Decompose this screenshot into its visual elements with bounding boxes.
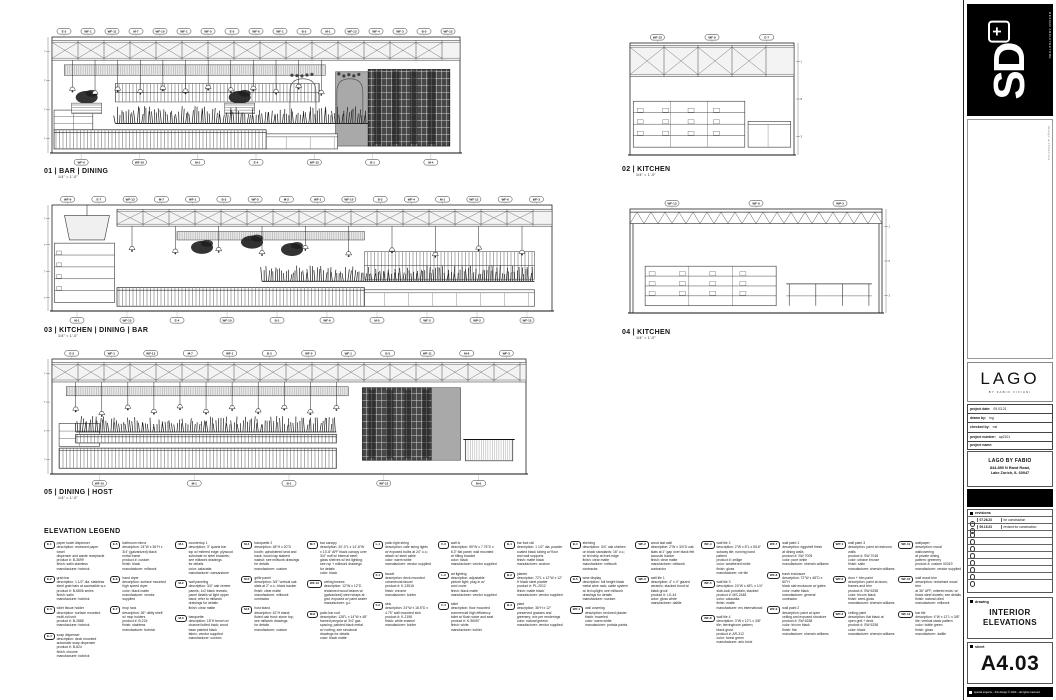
elevation-02-title: 02 | KITCHEN 1/4" = 1'-0" [622,166,670,177]
revision-row [968,544,1052,551]
finish-tag: WF-3 [423,319,431,323]
client-logo-subtext: BY FABIO VIVIANI [968,390,1052,394]
legend-tag: M-5 [241,576,252,584]
stamp-box [967,489,1053,507]
finish-tag: E-7 [97,198,102,202]
svg-text:8'-0": 8'-0" [44,243,46,247]
square-bullet-icon [970,645,973,648]
finish-tag: B-5 [422,30,427,34]
legend-text: wall paint 1description: eggshell finish… [782,541,828,567]
finish-tag: WF-1 [108,352,116,356]
firm-info-box: design architecture [967,119,1053,359]
finish-tag: M-1 [325,30,330,34]
sheet-label-row: sheet [968,643,1052,650]
svg-text:2'-6": 2'-6" [44,296,46,300]
sheet-number: A4.03 [968,652,1052,676]
legend-text: patio light stringdescription: cafe stri… [385,541,431,567]
elevation-05-dining-host: 13'-6"9'-0"3'-0"2'-6"E-2WF-1WF-13M-7WF-1… [44,349,534,488]
legend-text: shelvingdescription: 3/4" oak shelveson … [583,541,626,571]
legend-text: grab bardescription: 1 1/2" dia. stainle… [57,576,107,602]
legend-column: B-1bar foot raildescription: 1 1/2" dia.… [504,541,567,697]
sd-logo: SD + [988,20,1032,99]
legend-tag: E-6 [110,576,121,584]
finish-tag: WF-10 [135,161,144,165]
svg-text:2'-6": 2'-6" [44,458,46,462]
legend-tag: B-3 [504,602,515,610]
legend-tag: E-3 [44,606,55,614]
legend-entry: E-1paper towel dispenserdescription: rec… [44,541,107,571]
legend-text: bar canopydescription: 20'-0"L x 14'-6"W… [320,541,367,575]
legend-entry: E-7mop rackdescription: 36" utility shel… [110,606,173,632]
project-info-row: project date:09.03.21 [967,404,1053,413]
revision-row [968,537,1052,544]
legend-entry: E-5bathroom mirrordescription: 24"W x 36… [110,541,173,571]
legend-entry: B-1bar foot raildescription: 1 1/2" dia.… [504,541,567,567]
finish-tag: M-7 [159,198,164,202]
sheet-label: sheet [975,645,984,649]
finish-tag: WF-10 [223,319,232,323]
finish-tag: WF-1 [180,30,188,34]
finish-tag: WF-12 [469,198,478,202]
legend-entry: WF-4wall tile 2description: 2"W x 8"L x … [701,541,764,575]
legend-text: ceiling paintdescription: flat black ato… [848,611,894,637]
project-info-row: project name: [967,441,1053,450]
legend-text: wall tile 4description: 3"W x 12"L x 3/8… [717,615,761,645]
legend-column: L-1patio light stringdescription: cafe s… [373,541,436,697]
elevation-03-scale: 1/4" = 1'-0" [58,334,148,338]
legend-column: WP-1wall paint 3description: paint at re… [833,541,896,697]
legend-text: trash enclosuredescription: 72"W x 48"D … [782,572,829,602]
info-value: md [993,425,998,429]
legend-tag: WP-1 [833,541,847,549]
finish-tag: WF-4 [372,30,380,34]
legend-entry: WF-7wall paint 1description: eggshell fi… [767,541,830,567]
finish-tag: WF-9 [708,36,716,40]
finish-tag: WF-3 [533,198,541,202]
legend-text: banquettedescription: 18"H bench w/chann… [189,615,229,641]
elevation-02-scale: 1/4" = 1'-0" [636,173,670,177]
legend-entry: E-2grab bardescription: 1 1/2" dia. stai… [44,576,107,602]
legend-tag: WF-9 [767,606,780,614]
legend-column: F-3wall tvdescription: 55"W x 7.75"D x6.… [438,541,501,697]
legend-tag: M-6 [241,606,252,614]
finish-tag: WF-11 [423,352,432,356]
legend-tag: M-4 [241,541,252,549]
legend-tag: WF-4 [701,541,714,549]
legend-entry: WF-11wallpaperdescription: mural wallcov… [898,541,961,571]
project-info-row: checked by:md [967,422,1053,431]
drawing-title-box: drawing INTERIOR ELEVATIONS [967,597,1053,639]
finish-tag: M-2 [284,198,289,202]
revision-row [968,530,1052,537]
finish-tag: WF-4 [408,198,416,202]
finish-tag: WF-10 [95,482,104,486]
legend-entry: WP-2door + trim paintdescription: paint … [833,576,896,606]
finish-tag: WF-3 [503,352,511,356]
legend-entry: E-4soap dispenserdescription: deck mount… [44,633,107,659]
revision-note: revised for construction [1001,525,1052,529]
legend-entry: WF-5wall tile 3description: 24"W x 48"L … [701,580,764,610]
project-address-box: LAGO BY FABIO 844-850 N Rand Road, Lake … [967,451,1053,487]
revision-row [968,558,1052,565]
elevation-05-label: 05 | DINING | HOST [44,489,113,496]
legend-entry: WF-3wall tile 1description: 4" x 4" glaz… [635,576,698,606]
elevation-01-title: 01 | BAR | DINING 1/4" = 1'-0" [44,168,108,179]
finish-tag: WF-10 [344,198,353,202]
legend-title: ELEVATION LEGEND [44,528,121,535]
legend-entry: F-1faucetdescription: deck mountedcommer… [373,572,436,598]
finish-tag: WF-5 [305,352,313,356]
elevation-drawing-svg: 13'-6"9'-0"3'-0"2'-6"E-2WF-1WF-13M-7WF-1… [44,349,534,488]
svg-text:9'-0": 9'-0" [44,400,46,404]
legend-column: E-5bathroom mirrordescription: 24"W x 36… [110,541,173,697]
finish-tag: WF-6 [323,319,331,323]
legend-text: planterdescription: 72"L x 12"W x 12"H b… [517,572,563,598]
legend-tag: WF-8 [767,572,780,580]
project-address-line1: 844-850 N Rand Road, [968,466,1052,470]
revision-note: for construction [1001,518,1052,522]
info-label: project date: [970,407,990,411]
sd-logo-plus-icon: + [988,20,1010,42]
svg-text:13'-6": 13'-6" [44,371,46,375]
elevation-drawing-svg: 12'-8"8'-4"3'-0"WF-13WF-9E-7 [622,33,802,161]
finish-tag: E-2 [62,30,67,34]
legend-text: patio bar roofdescription: 128"L x 14"W … [320,611,367,641]
svg-text:12'-8": 12'-8" [801,60,803,64]
legend-text: wall tvdescription: 55"W x 7.75"D x6.3" … [451,541,497,567]
legend-tag: WF-10 [898,576,913,584]
finish-tag: WF-1 [226,352,234,356]
legend-column: WF-11wallpaperdescription: mural wallcov… [898,541,961,697]
legend-text: hand dryerdescription: surface mountedhi… [122,576,166,602]
legend-tag: M-7 [307,541,318,549]
finish-tag: WF-1 [189,198,197,202]
finish-tag: WF-1 [345,352,353,356]
client-logo-box: LAGO BY FABIO VIVIANI [967,362,1053,402]
elevation-02-label: 02 | KITCHEN [622,166,670,173]
legend-text: mop rackdescription: 36" utility shelfw/… [122,606,162,632]
legend-tag: B-1 [504,541,515,549]
finish-tag: WF-13 [126,198,135,202]
legend-text: wood slat walldescription: 2"W x 3/4"D o… [651,541,694,571]
legend-tag: F-4 [438,602,449,610]
legend-tag: WF-7 [767,541,780,549]
svg-text:13'-6": 13'-6" [44,50,46,54]
info-label: project number: [970,435,996,439]
legend-text: wall tile 1description: 4" x 4" glazedce… [651,576,690,606]
legend-entry: M-8patio bar roofdescription: 128"L x 14… [307,611,370,641]
legend-tag: E-5 [110,541,121,549]
legend-text: toiletdescription: floor mountedcommerci… [451,602,493,632]
legend-text: wall coveringdescription: textured plast… [585,606,627,627]
project-info-row: project number:ap2101 [967,432,1053,441]
finish-tag: M-1 [192,482,197,486]
finish-tag: WF-12 [310,161,319,165]
info-label: checked by: [970,425,990,429]
finish-tag: E-2 [69,352,74,356]
legend-column: WF-2wood slat walldescription: 2"W x 3/4… [635,541,698,697]
info-label: drawn by: [970,416,986,420]
legend-tag: F-2 [373,602,384,610]
elevation-04-label: 04 | KITCHEN [622,329,670,336]
elevation-01-bar-dining: 13'-6"9'-0"3'-6"2'-10"E-2WF-1WF-11M-7WF-… [44,27,468,167]
finish-tag: WF-10 [156,30,165,34]
revision-number [968,574,977,592]
legend-text: wall tile 3description: 24"W x 48"L x 1/… [717,580,763,610]
finish-tag: B-2 [378,198,383,202]
finish-tag: WF-9 [752,202,760,206]
finish-tag: WP-2 [473,319,481,323]
drawing-label-row: drawing [968,598,1052,605]
finish-tag: WF-6 [501,198,509,202]
legend-tag: WF-6 [701,615,714,623]
legend-column: B-4shelvingdescription: 3/4" oak shelves… [570,541,633,697]
legend-entry: WF-8trash enclosuredescription: 72"W x 4… [767,572,830,602]
client-logo-text: LAGO [968,369,1052,389]
legend-entry: M-6host standdescription: 42"H stand;flu… [241,606,304,632]
finish-tag: B-2 [302,30,307,34]
legend-tag: M-3 [175,615,186,623]
legend-tag: WP-2 [833,576,847,584]
finish-tag: M-5 [374,319,379,323]
finish-tag: M-1 [195,161,200,165]
legend-text: wall paint 2description: paint at opence… [782,606,828,636]
legend-column: WF-4wall tile 2description: 2"W x 8"L x … [701,541,764,697]
finish-tag: WP-3 [836,202,844,206]
finish-tag: WF-9 [64,198,72,202]
legend-entry: WF-12bar tiledescription: 4"W x 12"L x 3… [898,611,961,637]
svg-text:9'-0": 9'-0" [44,79,46,83]
legend-text: wall paint 3description: paint at restro… [848,541,894,571]
elevation-drawing-svg: 13'-6"8'-0"3'-6"2'-6"WF-9E-7WF-13M-7WF-1… [44,195,560,325]
info-value: 09.03.21 [993,407,1006,411]
elevation-01-label: 01 | BAR | DINING [44,168,108,175]
project-name: LAGO BY FABIO [968,458,1052,464]
legend-entry: F-4toiletdescription: floor mountedcomme… [438,602,501,632]
copyright-strip: special projects – this design © 2023 – … [967,687,1053,697]
finish-tag: B-3 [267,352,272,356]
finish-tag: WF-6 [252,30,260,34]
legend-tag: WF-5 [701,580,714,588]
legend-entry: WF-13ceiling beamsdescription: 12"W x 12… [307,580,370,606]
legend-entry: WF-6wall tile 4description: 3"W x 12"L x… [701,615,764,645]
legend-entry: M-1countertop 1description: 3" quartz ba… [175,541,238,575]
drawing-label: drawing [975,600,989,604]
sd-logo-text: SD [988,44,1032,99]
legend-tag: M-8 [307,611,318,619]
project-info-row: drawn by:mg [967,413,1053,422]
revisions-label: revisions [975,511,991,515]
svg-text:3'-0": 3'-0" [801,134,803,138]
finish-tag: B-1 [275,319,280,323]
legend-text: toilet tissue holderdescription: surface… [57,606,101,627]
legend-text: wall tile 2description: 2"W x 8"L x 5/16… [717,541,761,575]
finish-tag: B-5 [385,352,390,356]
legend-text: grille paneldescription: 3/4" vertical o… [254,576,296,602]
drawing-title-line2: ELEVATIONS [968,618,1052,628]
finish-tag: WF-12 [123,319,132,323]
elevation-02-kitchen: 12'-8"8'-4"3'-0"WF-13WF-9E-7 [622,33,802,161]
legend-entry: M-5grille paneldescription: 3/4" vertica… [241,576,304,602]
legend-entry: F-3wall tvdescription: 55"W x 7.75"D x6.… [438,541,501,567]
legend-entry: L-1patio light stringdescription: cafe s… [373,541,436,567]
square-bullet-icon [969,691,972,694]
firm-side-note: design architecture [1047,126,1051,161]
elevation-04-scale: 1/4" = 1'-0" [636,336,670,340]
legend-tag: M-1 [175,541,186,549]
legend-entry: F-2sinkdescription: 24"W x 18.5"D x4.75"… [373,602,436,628]
legend-tag: WF-2 [635,541,648,549]
legend-text: wallpaperdescription: mural wallcovering… [915,541,961,571]
finish-tag: E-4 [175,319,180,323]
legend-tag: E-1 [44,541,55,549]
drawing-title-line1: INTERIOR [968,608,1052,618]
finish-tag: WF-1 [314,198,322,202]
legend-entry: B-3plantdescription: 36"H x 12"preserved… [504,602,567,628]
finish-tag: M-1 [440,198,445,202]
legend-text: ceiling beamsdescription: 12"W x 12"Drec… [324,580,367,606]
legend-text: soap dispenserdescription: deck mounteda… [57,633,97,659]
svg-text:2'-10": 2'-10" [44,137,46,141]
legend-entry: WP-1wall paint 3description: paint at re… [833,541,896,571]
legend-tag: B-2 [504,572,515,580]
finish-tag: B-1 [287,482,292,486]
legend-text: bar foot raildescription: 1 1/2" dia. po… [517,541,563,567]
elevation-01-scale: 1/4" = 1'-0" [58,175,108,179]
legend-text: sinkdescription: 24"W x 18.5"D x4.75" wa… [385,602,428,628]
legend-text: paper towel dispenserdescription: recess… [57,541,107,571]
revision-row [968,572,1052,579]
legend-tag: L-2 [438,572,449,580]
finish-tag: M-4 [428,161,433,165]
legend-tag: WP-3 [833,611,847,619]
sheet-number-box: sheet A4.03 [967,642,1053,684]
finish-tag: WF-12 [523,319,532,323]
legend-entry: WF-9wall paint 2description: paint at op… [767,606,830,636]
elevation-05-scale: 1/4" = 1'-0" [58,496,113,500]
revisions-box: revisions 107.26.23for construction209.1… [967,509,1053,593]
revision-date: 09.15.23 [977,525,1001,529]
elevation-legend: E-1paper towel dispenserdescription: rec… [44,541,961,697]
finish-tag: E-7 [764,36,769,40]
project-info-rows: project date:09.03.21drawn by:mgchecked … [967,404,1053,450]
legend-entry: L-2art lightingdescription: adjustablepi… [438,572,501,598]
legend-tag: E-2 [44,576,55,584]
svg-text:6'-8": 6'-8" [889,259,891,263]
legend-tag: F-1 [373,572,384,580]
finish-tag: B-3 [221,198,226,202]
legend-column: WF-7wall paint 1description: eggshell fi… [767,541,830,697]
svg-text:3'-6": 3'-6" [44,108,46,112]
legend-tag: B-5 [570,576,581,584]
elevation-04-title: 04 | KITCHEN 1/4" = 1'-0" [622,329,670,340]
project-address-line2: Lake Zurich, IL 60047 [968,471,1052,475]
legend-tag: WF-1 [570,606,583,614]
legend-text: banquette 2description: 48"H x 20"Dbooth… [254,541,299,571]
copyright-text: special projects – this design © 2023 – … [974,691,1040,694]
revision-row: 209.15.23revised for construction [968,523,1052,530]
legend-entry: M-7bar canopydescription: 20'-0"L x 14'-… [307,541,370,575]
finish-tag: B-1 [370,161,375,165]
legend-entry: E-3toilet tissue holderdescription: surf… [44,606,107,627]
legend-text: wall panelingdescription: 3/4" oak venee… [189,580,231,610]
finish-tag: WF-13 [668,202,677,206]
legend-entry: M-2wall panelingdescription: 3/4" oak ve… [175,580,238,610]
revision-row: 107.26.23for construction [968,516,1052,523]
legend-column: M-1countertop 1description: 3" quartz ba… [175,541,238,697]
elevation-drawing-svg: 13'-6"9'-0"3'-6"2'-10"E-2WF-1WF-11M-7WF-… [44,27,468,167]
svg-text:3'-6": 3'-6" [44,269,46,273]
legend-tag: E-7 [110,606,121,614]
finish-tag: M-7 [133,30,138,34]
legend-tag: L-1 [373,541,384,549]
finish-tag: WF-1 [84,30,92,34]
elevation-05-title: 05 | DINING | HOST 1/4" = 1'-0" [44,489,113,500]
svg-text:14'-0": 14'-0" [889,224,891,228]
legend-tag: WF-3 [635,576,648,584]
svg-text:3'-0": 3'-0" [889,294,891,298]
finish-tag: WF-5 [251,198,259,202]
legend-tag: WF-11 [898,541,913,549]
elevation-drawing-svg: 14'-0"6'-8"3'-0"WF-13WF-9WP-3 [622,199,890,319]
svg-text:13'-6": 13'-6" [44,216,46,220]
info-value: mg [989,416,994,420]
legend-text: art lightingdescription: adjustablepictu… [451,572,497,598]
revisions-rows: 107.26.23for construction209.15.23revise… [968,516,1052,586]
legend-column: E-1paper towel dispenserdescription: rec… [44,541,107,697]
info-value: ap2101 [999,435,1010,439]
finish-tag: M-6 [476,482,481,486]
title-block: SD + DESIGN ARCHITECTURE design architec… [963,0,1056,700]
finish-tag: WF-3 [396,30,404,34]
finish-tag: M-7 [188,352,193,356]
finish-tag: M-6 [464,352,469,356]
info-label: project name: [970,443,992,447]
finish-tag: E-4 [254,161,259,165]
finish-tag: E-5 [230,30,235,34]
legend-entry: M-4banquette 2description: 48"H x 20"Dbo… [241,541,304,571]
legend-entry: B-2planterdescription: 72"L x 12"W x 12"… [504,572,567,598]
finish-tag: WF-13 [348,30,357,34]
legend-text: door + trim paintdescription: paint at d… [848,576,894,606]
elevation-03-kitchen-dining-bar: 13'-6"8'-0"3'-6"2'-6"WF-9E-7WF-13M-7WF-1… [44,195,560,325]
legend-entry: WF-2wood slat walldescription: 2"W x 3/4… [635,541,698,571]
legend-entry: WF-1wall coveringdescription: textured p… [570,606,633,627]
legend-entry: E-6hand dryerdescription: surface mounte… [110,576,173,602]
legend-text: faucetdescription: deck mountedcommercia… [385,572,425,598]
finish-tag: WF-12 [444,30,453,34]
finish-tag: M-1 [74,319,79,323]
legend-text: plantdescription: 36"H x 12"preserved gr… [517,602,563,628]
legend-text: bar tiledescription: 4"W x 12"L x 3/8"ti… [915,611,959,637]
firm-tagline: DESIGN ARCHITECTURE [1048,12,1052,59]
finish-tag: WF-5 [204,30,212,34]
legend-column: M-4banquette 2description: 48"H x 20"Dbo… [241,541,304,697]
legend-tag: E-4 [44,633,55,641]
firm-logo-box: SD + DESIGN ARCHITECTURE [967,4,1053,116]
legend-tag: WF-12 [898,611,913,619]
legend-text: countertop 1description: 3" quartz barto… [189,541,233,575]
legend-text: wine displaydescription: full height bla… [583,576,628,602]
legend-text: wall wood trimdescription: reclaimed woo… [915,576,961,606]
finish-tag: WF-11 [108,30,117,34]
finish-tag: WF-12 [379,482,388,486]
revision-row [968,579,1052,586]
legend-entry: B-4shelvingdescription: 3/4" oak shelves… [570,541,633,571]
legend-entry: WP-3ceiling paintdescription: flat black… [833,611,896,637]
legend-tag: B-4 [570,541,581,549]
finish-tag: WF-13 [146,352,155,356]
